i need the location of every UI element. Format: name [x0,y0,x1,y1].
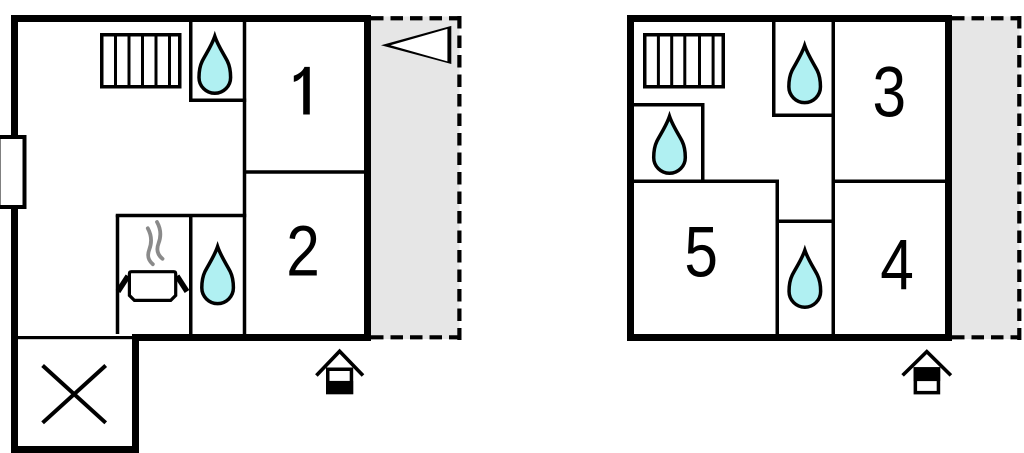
svg-text:5: 5 [684,212,718,292]
svg-text:2: 2 [286,211,320,291]
svg-text:3: 3 [873,52,907,132]
svg-text:4: 4 [880,224,914,304]
